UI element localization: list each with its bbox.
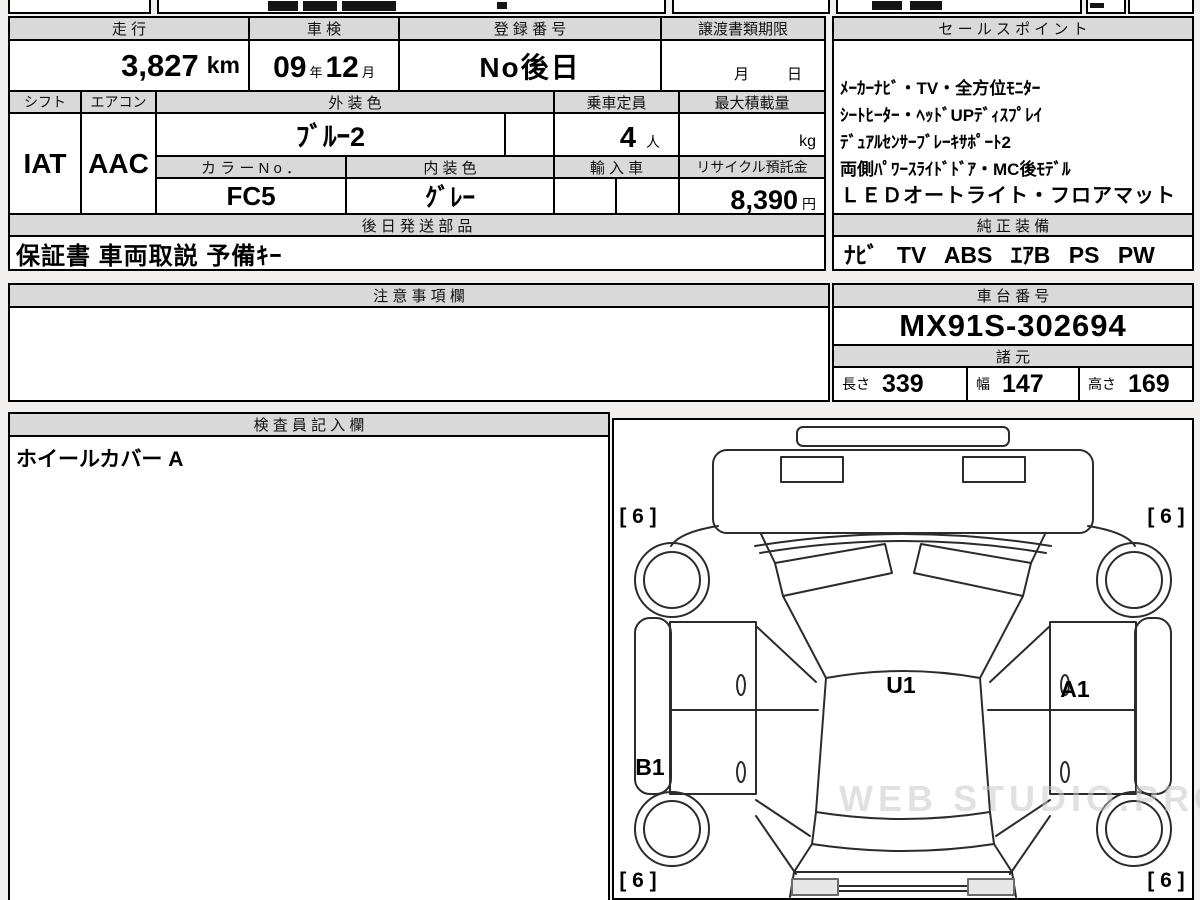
- spec-width-value: 147: [1002, 370, 1044, 399]
- spec-length-cell: 長さ 339: [832, 366, 968, 402]
- capacity-value-cell: 4 人: [553, 112, 680, 157]
- interior-color-value: ｸﾞﾚｰ: [425, 178, 475, 214]
- sales-points-header: セ ー ル ス ポ イ ン ト: [832, 16, 1194, 41]
- inspection-month: 12: [326, 51, 359, 85]
- recycle-deposit-value: 8,390: [730, 185, 798, 216]
- cutoff-text-fragment: [342, 1, 396, 11]
- cutoff-text-fragment: [497, 2, 507, 9]
- inspection-header: 車 検: [248, 16, 400, 41]
- recycle-deposit-value-cell: 8,390 円: [678, 177, 826, 215]
- damage-mark-left-sill: B1: [628, 754, 672, 781]
- registration-value: No後日: [479, 46, 580, 86]
- specs-header: 諸 元: [832, 344, 1194, 368]
- sales-point-line: ﾒｰｶｰﾅﾋﾞ・TV・全方位ﾓﾆﾀｰ: [840, 75, 1186, 102]
- mileage-header: 走 行: [8, 16, 250, 41]
- chassis-number-value: MX91S-302694: [899, 308, 1126, 344]
- sales-points-body: ﾒｰｶｰﾅﾋﾞ・TV・全方位ﾓﾆﾀｰ ｼｰﾄﾋｰﾀｰ・ﾍｯﾄﾞUPﾃﾞｨｽﾌﾟﾚ…: [832, 39, 1194, 215]
- capacity-header: 乗車定員: [553, 90, 680, 114]
- exterior-color-extra-cell: [504, 112, 555, 157]
- later-parts-header: 後 日 発 送 部 品: [8, 213, 826, 237]
- shift-value-text: IAT: [23, 148, 66, 180]
- damage-mark-right-door: A1: [1052, 676, 1098, 703]
- interior-color-header: 内 装 色: [345, 155, 555, 179]
- genuine-equipment-value-cell: ﾅﾋﾞ TV ABS ｴｱB PS PW: [832, 235, 1194, 271]
- inspector-notes-header: 検 査 員 記 入 欄: [8, 412, 610, 437]
- car-diagram-svg: [614, 420, 1192, 898]
- exterior-color-value: ﾌﾞﾙｰ2: [296, 115, 365, 154]
- cutoff-text-fragment: [910, 1, 942, 10]
- notes-header: 注 意 事 項 欄: [8, 283, 830, 308]
- inspection-month-suffix: 月: [362, 62, 375, 81]
- tire-rating-top-left: [ 6 ]: [613, 505, 663, 529]
- aircon-value: AAC: [80, 112, 157, 215]
- later-parts-value: 保証書 車両取説 予備ｷｰ: [16, 236, 282, 271]
- spec-length-label: 長さ: [842, 374, 870, 394]
- import-car-header: 輸 入 車: [553, 155, 680, 179]
- registration-value-cell: No後日: [398, 39, 662, 92]
- wheels: [635, 543, 1171, 866]
- hood-and-windshield: [755, 534, 1051, 678]
- capacity-value: 4: [620, 122, 636, 155]
- notes-body: [8, 306, 830, 402]
- color-no-value-cell: FC5: [155, 177, 347, 215]
- shift-value: IAT: [8, 112, 82, 215]
- front-bumper: [713, 450, 1093, 533]
- cutoff-text-fragment: [1090, 3, 1104, 8]
- front-bumper-strip: [797, 427, 1009, 446]
- auction-sheet: 走 行 車 検 登 録 番 号 譲渡書類期限 3,827 km 09 年 12 …: [0, 0, 1200, 900]
- mileage-value-cell: 3,827 km: [8, 39, 250, 92]
- import-car-value-cell-2: [615, 177, 680, 215]
- max-load-unit: kg: [799, 133, 816, 151]
- spec-height-value: 169: [1128, 370, 1170, 399]
- transfer-month-label: 月: [734, 63, 749, 84]
- spec-height-label: 高さ: [1088, 374, 1116, 394]
- transfer-day-label: 日: [787, 63, 802, 84]
- sales-point-line: ｼｰﾄﾋｰﾀｰ・ﾍｯﾄﾞUPﾃﾞｨｽﾌﾟﾚｲ: [840, 102, 1186, 129]
- tire-rating-top-right: [ 6 ]: [1141, 505, 1191, 529]
- mileage-value: 3,827: [121, 48, 199, 84]
- left-doors: [670, 622, 818, 836]
- capacity-unit: 人: [646, 132, 660, 152]
- max-load-value-cell: kg: [678, 112, 826, 157]
- color-no-value: FC5: [226, 181, 275, 212]
- spec-width-label: 幅: [976, 374, 990, 394]
- inspection-year-suffix: 年: [309, 62, 322, 81]
- mileage-unit: km: [207, 52, 240, 79]
- rear-bumper: [790, 872, 1016, 897]
- transfer-docs-value-cell: 月 日: [660, 39, 826, 92]
- damage-mark-roof: U1: [878, 672, 924, 699]
- shift-header: シフト: [8, 90, 82, 114]
- chassis-number-value-cell: MX91S-302694: [832, 306, 1194, 346]
- color-no-header: カ ラ ー N o ．: [155, 155, 347, 179]
- tire-rating-bottom-left: [ 6 ]: [613, 869, 663, 893]
- inspector-notes-body: ホイールカバー A: [8, 435, 610, 900]
- inspection-value-cell: 09 年 12 月: [248, 39, 400, 92]
- cutoff-row-cell: [1128, 0, 1194, 14]
- right-sill: [1135, 618, 1171, 794]
- inspector-notes-value: ホイールカバー A: [16, 448, 183, 471]
- cutoff-row-cell: [157, 0, 666, 14]
- genuine-equipment-value: ﾅﾋﾞ TV ABS ｴｱB PS PW: [844, 236, 1155, 270]
- sales-point-line: ﾃﾞｭｱﾙｾﾝｻｰﾌﾞﾚｰｷｻﾎﾟｰﾄ2: [840, 129, 1186, 156]
- right-doors: [988, 622, 1136, 836]
- recycle-deposit-header: リサイクル預託金: [678, 155, 826, 179]
- cutoff-text-fragment: [872, 1, 902, 10]
- import-car-value-cell-1: [553, 177, 617, 215]
- cutoff-text-fragment: [268, 1, 298, 11]
- cutoff-row-cell: [672, 0, 830, 14]
- registration-number-header: 登 録 番 号: [398, 16, 662, 41]
- cutoff-text-fragment: [303, 1, 337, 11]
- inspection-year: 09: [273, 51, 306, 85]
- chassis-number-header: 車 台 番 号: [832, 283, 1194, 308]
- aircon-value-text: AAC: [88, 148, 149, 180]
- car-diagram-box: WEB STUDIO.PRO: [612, 418, 1194, 900]
- later-parts-value-cell: 保証書 車両取説 予備ｷｰ: [8, 235, 826, 271]
- aircon-header: エアコン: [80, 90, 157, 114]
- transfer-docs-deadline-header: 譲渡書類期限: [660, 16, 826, 41]
- interior-color-value-cell: ｸﾞﾚｰ 系: [345, 177, 555, 215]
- exterior-color-value-cell: ﾌﾞﾙｰ2: [155, 112, 506, 157]
- max-load-header: 最大積載量: [678, 90, 826, 114]
- recycle-deposit-unit: 円: [802, 194, 816, 214]
- rear-hatch: [794, 812, 1012, 872]
- sales-point-line: 両側ﾊﾟﾜｰｽﾗｲﾄﾞﾄﾞｱ・MC後ﾓﾃﾞﾙ: [840, 156, 1186, 183]
- tire-rating-bottom-right: [ 6 ]: [1141, 869, 1191, 893]
- spec-length-value: 339: [882, 370, 924, 399]
- cutoff-row-cell: [8, 0, 151, 14]
- exterior-color-header: 外 装 色: [155, 90, 555, 114]
- spec-width-cell: 幅 147: [966, 366, 1080, 402]
- sales-point-line: ＬＥＤオートライト・フロアマット: [840, 183, 1186, 210]
- genuine-equipment-header: 純 正 装 備: [832, 213, 1194, 237]
- spec-height-cell: 高さ 169: [1078, 366, 1194, 402]
